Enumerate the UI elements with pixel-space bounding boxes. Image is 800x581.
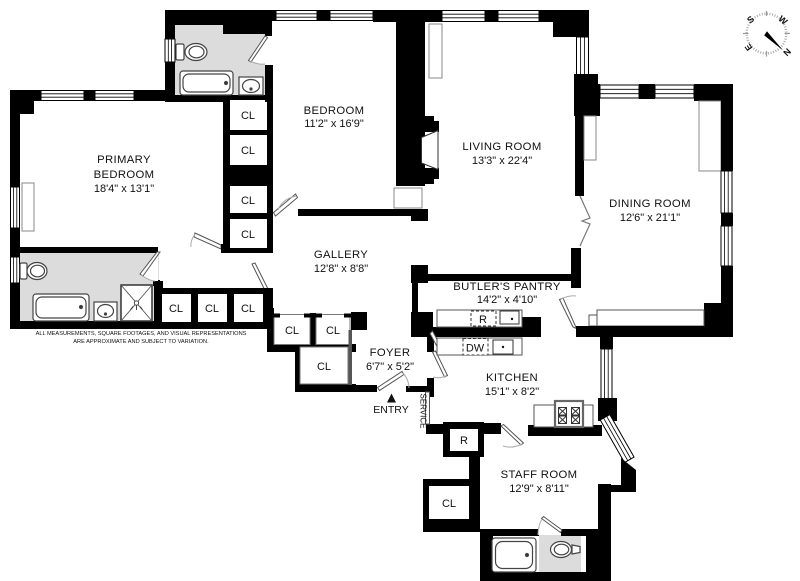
svg-text:DW: DW bbox=[466, 343, 485, 355]
svg-text:CL: CL bbox=[442, 498, 456, 510]
svg-text:BEDROOM: BEDROOM bbox=[94, 169, 155, 181]
svg-text:18'4" x 13'1": 18'4" x 13'1" bbox=[94, 183, 154, 195]
svg-text:ENTRY: ENTRY bbox=[373, 404, 408, 416]
svg-text:LIVING ROOM: LIVING ROOM bbox=[462, 141, 541, 153]
svg-text:FOYER: FOYER bbox=[370, 347, 411, 359]
svg-text:ALL MEASUREMENTS, SQUARE FOOTA: ALL MEASUREMENTS, SQUARE FOOTAGES, AND V… bbox=[36, 331, 247, 337]
svg-text:CL: CL bbox=[241, 303, 255, 315]
svg-text:CL: CL bbox=[285, 325, 299, 337]
svg-text:CL: CL bbox=[241, 145, 255, 157]
svg-text:12'8" x 8'8": 12'8" x 8'8" bbox=[314, 263, 368, 275]
svg-text:14'2" x 4'10": 14'2" x 4'10" bbox=[477, 294, 537, 306]
svg-text:12'6" x 21'1": 12'6" x 21'1" bbox=[620, 212, 680, 224]
svg-text:CL: CL bbox=[317, 361, 331, 373]
svg-text:R: R bbox=[460, 435, 468, 447]
svg-text:CL: CL bbox=[169, 303, 183, 315]
svg-text:6'7" x 5'2": 6'7" x 5'2" bbox=[366, 361, 414, 373]
svg-text:ARE APPROXIMATE AND SUBJECT TO: ARE APPROXIMATE AND SUBJECT TO VARIATION… bbox=[73, 339, 209, 345]
svg-text:BUTLER'S PANTRY: BUTLER'S PANTRY bbox=[453, 281, 561, 293]
svg-text:12'9" x 8'11": 12'9" x 8'11" bbox=[509, 483, 569, 495]
svg-text:GALLERY: GALLERY bbox=[314, 249, 368, 261]
svg-text:13'3" x 22'4": 13'3" x 22'4" bbox=[472, 155, 532, 167]
svg-text:CL: CL bbox=[241, 229, 255, 241]
svg-text:CL: CL bbox=[205, 303, 219, 315]
svg-text:15'1" x 8'2": 15'1" x 8'2" bbox=[485, 386, 539, 398]
svg-text:DINING ROOM: DINING ROOM bbox=[609, 198, 691, 210]
svg-text:11'2" x 16'9": 11'2" x 16'9" bbox=[304, 118, 364, 130]
svg-text:BEDROOM: BEDROOM bbox=[304, 105, 365, 117]
svg-text:CL: CL bbox=[326, 325, 340, 337]
svg-text:KITCHEN: KITCHEN bbox=[486, 372, 538, 384]
svg-text:CL: CL bbox=[241, 195, 255, 207]
svg-text:CL: CL bbox=[241, 110, 255, 122]
svg-text:STAFF ROOM: STAFF ROOM bbox=[501, 469, 578, 481]
svg-text:R: R bbox=[479, 314, 487, 326]
svg-text:PRIMARY: PRIMARY bbox=[97, 154, 151, 166]
svg-text:SERVICE: SERVICE bbox=[419, 394, 428, 429]
